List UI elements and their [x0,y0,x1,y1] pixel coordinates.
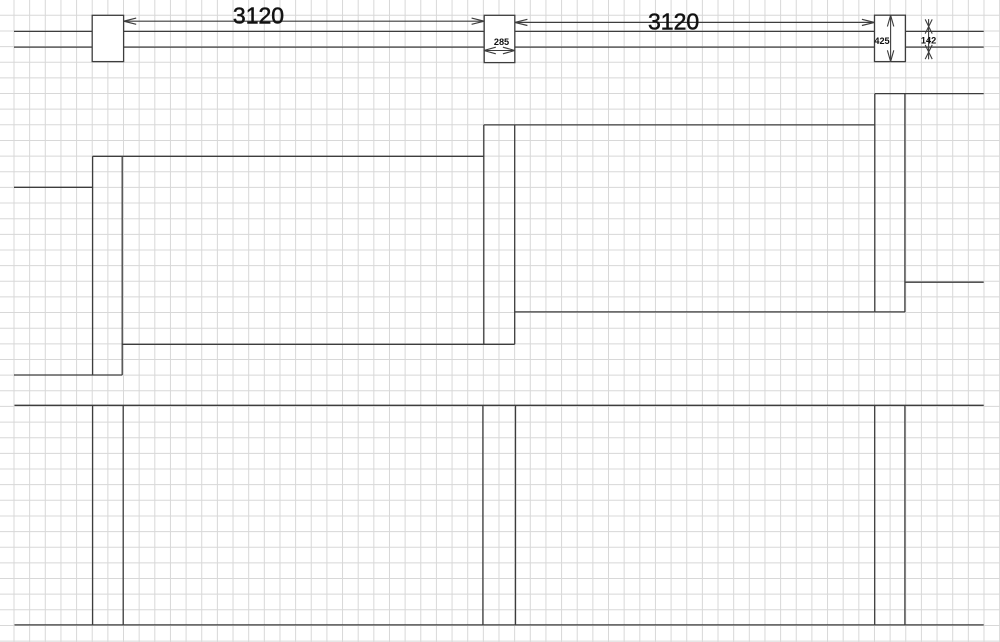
svg-text:3120: 3120 [233,3,284,29]
svg-text:142: 142 [921,36,936,46]
svg-text:425: 425 [874,36,889,46]
svg-text:285: 285 [494,37,509,47]
svg-text:3120: 3120 [648,9,699,35]
